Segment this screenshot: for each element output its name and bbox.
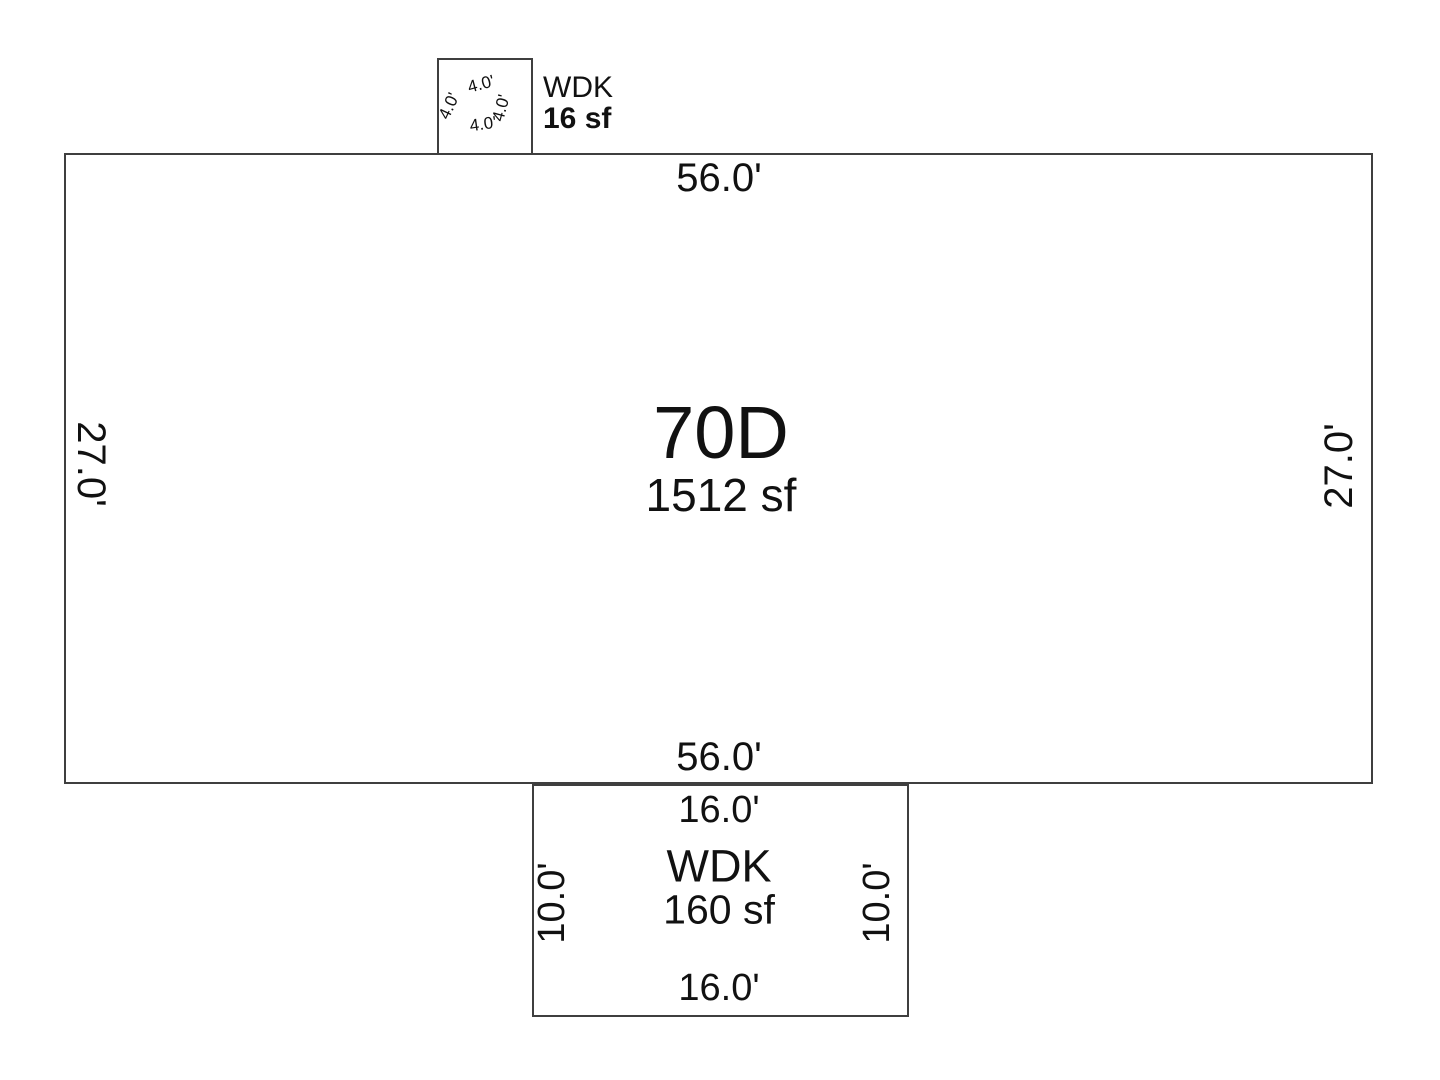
floor-plan-sketch: 70D 1512 sf 56.0' 56.0' 27.0' 27.0' 4.0'… <box>0 0 1440 1080</box>
main-dim-left: 27.0' <box>71 421 111 507</box>
bottom-deck-area: 160 sf <box>663 890 775 931</box>
bottom-deck-dim-right: 10.0' <box>858 862 896 943</box>
main-dim-bottom: 56.0' <box>676 737 762 777</box>
bottom-deck-name: WDK <box>667 844 772 889</box>
bottom-deck-dim-bottom: 16.0' <box>678 969 759 1007</box>
main-dim-top: 56.0' <box>676 158 762 198</box>
main-unit-area: 1512 sf <box>646 472 797 518</box>
main-unit-name: 70D <box>653 396 789 470</box>
top-deck-name: WDK <box>543 72 613 103</box>
bottom-deck-dim-top: 16.0' <box>678 791 759 829</box>
top-deck-caption: WDK 16 sf <box>543 72 613 134</box>
main-dim-right: 27.0' <box>1319 423 1359 509</box>
top-deck-area: 16 sf <box>543 103 613 134</box>
bottom-deck-dim-left: 10.0' <box>533 862 571 943</box>
